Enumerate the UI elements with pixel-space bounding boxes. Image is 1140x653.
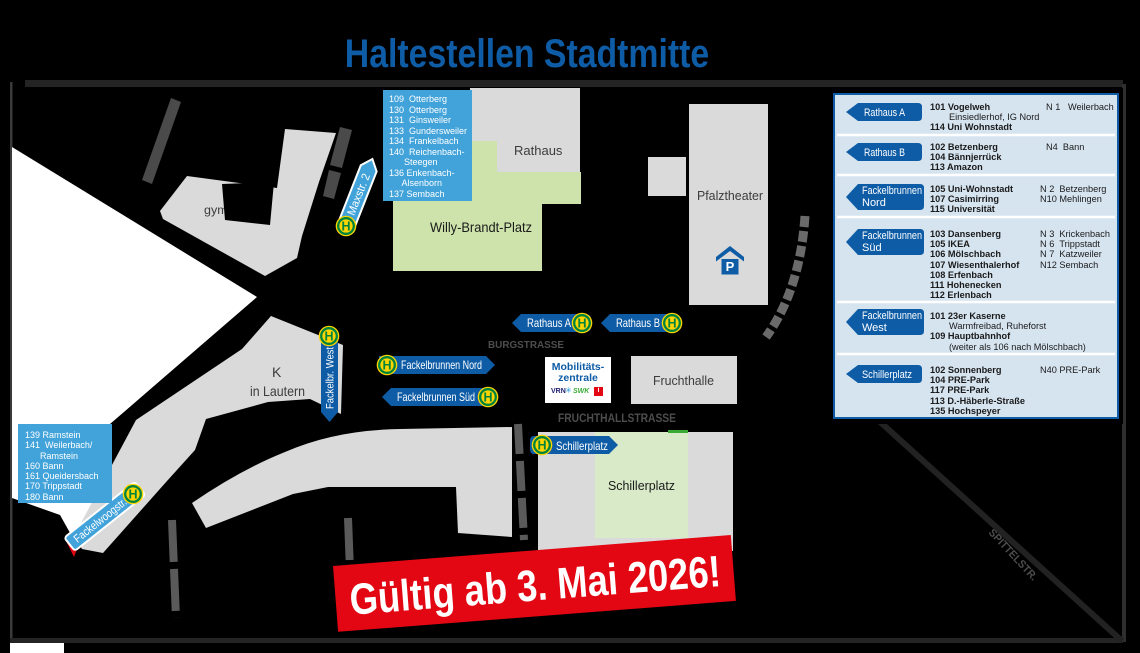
svg-text:Fackelbr. West: Fackelbr. West xyxy=(325,347,337,409)
svg-text:H: H xyxy=(128,487,137,501)
svg-text:Fackelbrunnen: Fackelbrunnen xyxy=(862,310,922,322)
svg-text:BURGSTRASSE: BURGSTRASSE xyxy=(488,339,564,351)
svg-text:Rathaus: Rathaus xyxy=(514,143,563,158)
svg-text:Rathaus B: Rathaus B xyxy=(864,147,905,159)
svg-text:Fackelbrunnen Süd: Fackelbrunnen Süd xyxy=(397,390,475,404)
svg-text:FRUCHTHALLSTRASSE: FRUCHTHALLSTRASSE xyxy=(558,413,676,425)
svg-text:H: H xyxy=(537,438,546,452)
svg-text:H: H xyxy=(667,316,676,330)
svg-text:Fackelbrunnen: Fackelbrunnen xyxy=(862,185,922,197)
svg-text:Schillerplatz: Schillerplatz xyxy=(862,369,912,381)
svg-text:Willy-Brandt-Platz: Willy-Brandt-Platz xyxy=(430,219,532,235)
svg-text:Fackelbrunnen Nord: Fackelbrunnen Nord xyxy=(401,358,482,372)
svg-text:P: P xyxy=(726,259,735,274)
svg-text:Schillerplatz: Schillerplatz xyxy=(556,439,608,453)
svg-text:Nord: Nord xyxy=(862,197,886,209)
svg-text:Fruchthalle: Fruchthalle xyxy=(653,373,714,388)
svg-text:in Lautern: in Lautern xyxy=(250,383,305,399)
svg-text:K: K xyxy=(272,364,282,380)
svg-text:H: H xyxy=(577,316,586,330)
svg-text:Rathaus A: Rathaus A xyxy=(864,107,906,119)
svg-text:Rathaus A: Rathaus A xyxy=(527,316,571,330)
svg-text:Pfalztheater: Pfalztheater xyxy=(697,188,764,203)
svg-text:H: H xyxy=(324,329,333,343)
svg-text:Schillerplatz: Schillerplatz xyxy=(608,478,675,493)
svg-text:H: H xyxy=(483,390,492,404)
svg-text:Süd: Süd xyxy=(862,242,882,254)
svg-text:H: H xyxy=(341,219,350,233)
svg-text:Rathaus B: Rathaus B xyxy=(616,316,660,330)
svg-text:Fackelbrunnen: Fackelbrunnen xyxy=(862,230,922,242)
svg-text:H: H xyxy=(382,358,391,372)
svg-text:West: West xyxy=(862,322,887,334)
